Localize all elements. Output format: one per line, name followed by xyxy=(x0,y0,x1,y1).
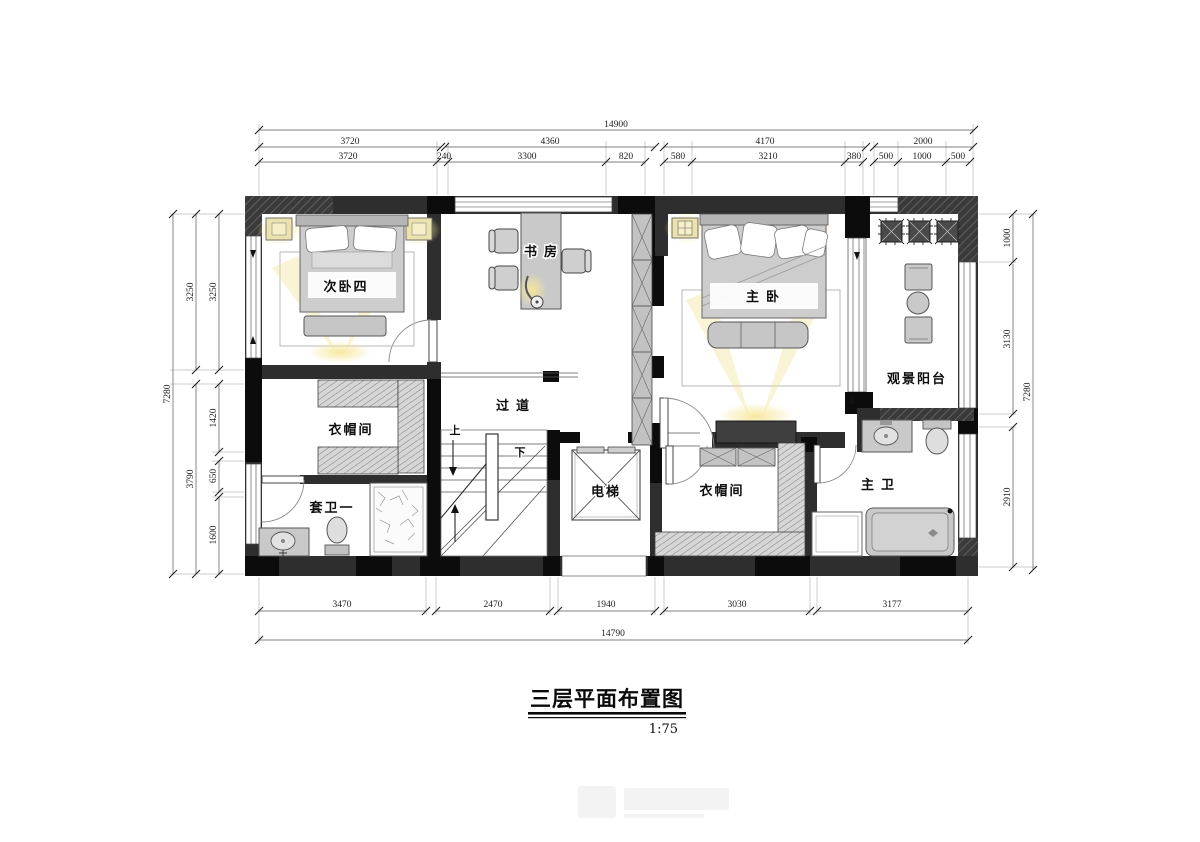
dim-top-r3-2: 3300 xyxy=(518,152,537,162)
shower-tray xyxy=(812,512,862,556)
master-bath-window xyxy=(959,434,976,538)
bed-headboard xyxy=(296,215,408,226)
room-label-study: 书房 xyxy=(524,244,564,260)
top-wall-block1 xyxy=(427,196,455,214)
bedroom4-door xyxy=(389,320,437,362)
cloakroom2-top-lines xyxy=(664,433,700,446)
toilet xyxy=(923,420,951,454)
room-label-elevator: 电梯 xyxy=(591,484,621,500)
stairs: 上 下 xyxy=(441,423,547,556)
tub-faucet xyxy=(948,509,953,514)
right-wall-hatch-top xyxy=(958,196,978,262)
dim-top-r3-0: 3720 xyxy=(339,152,358,162)
dim-right-total: 7280 xyxy=(1023,382,1033,401)
dim-bot-0: 3470 xyxy=(333,600,352,610)
dim-left-in-1: 1420 xyxy=(209,408,219,427)
bottom-wall-b2 xyxy=(356,556,392,576)
bed-headboard xyxy=(700,214,828,225)
balcony-top-window xyxy=(868,197,898,212)
drawing-scale: 1:75 xyxy=(649,722,678,737)
chair xyxy=(562,249,591,273)
dim-right-in-2: 2910 xyxy=(1003,487,1013,506)
pillow xyxy=(305,225,349,253)
dim-left-mid-1: 3790 xyxy=(186,469,196,488)
master-bedroom-door xyxy=(660,398,714,448)
pillow xyxy=(353,226,397,253)
label-stairs-up: 上 xyxy=(450,423,463,437)
room-cloakroom-right: 衣帽间 xyxy=(655,443,805,556)
room-suite-bath-one: 套卫一 xyxy=(259,483,427,556)
desk-lamp-dot xyxy=(536,301,539,304)
dim-top-r2-2: 4170 xyxy=(756,137,775,147)
watermark xyxy=(578,786,729,818)
wardrobe xyxy=(655,532,805,556)
plant-icon xyxy=(934,218,961,245)
plant-icon xyxy=(878,218,905,245)
wardrobe xyxy=(778,443,805,535)
duvet-fold xyxy=(312,252,392,268)
balcony-bath-wall-hatch xyxy=(880,408,974,421)
dim-top-r2-3: 2000 xyxy=(914,137,933,147)
dim-left-total: 7280 xyxy=(163,384,173,403)
title-block: 三层平面布置图 1:75 xyxy=(528,686,686,737)
room-label-cloakroom-right: 衣帽间 xyxy=(699,483,744,499)
bed-bench xyxy=(708,322,808,348)
dim-bot-1: 2470 xyxy=(484,600,503,610)
suite-bath-door xyxy=(262,476,304,522)
room-study: 书房 xyxy=(489,213,591,309)
dim-top-r3-7: 500 xyxy=(879,152,894,162)
dim-left-in-2: 650 xyxy=(209,469,219,484)
floor-lamp-glow xyxy=(308,341,372,363)
room-label-bedroom4: 次卧四 xyxy=(323,279,368,295)
bottom-wall-b1 xyxy=(245,556,279,576)
drawing-title: 三层平面布置图 xyxy=(530,686,684,711)
master-balcony-window xyxy=(848,238,866,392)
cabinet xyxy=(700,448,736,466)
bottom-wall-b4 xyxy=(543,556,560,576)
pillow xyxy=(703,224,742,260)
dim-top-r3-6: 380 xyxy=(847,152,862,162)
master-bath-door xyxy=(814,445,856,483)
room-label-suite-bath-one: 套卫一 xyxy=(308,500,354,516)
master-balcony-wall-top xyxy=(845,196,870,238)
study-window xyxy=(455,197,612,212)
floor-plan-page: 14900 3720 4360 4170 2000 3720 240 3300 … xyxy=(0,0,1200,842)
dim-top-r3-1: 240 xyxy=(437,152,452,162)
room-balcony: 观景阳台 xyxy=(878,218,961,387)
bedroom4-bottom-wall xyxy=(262,365,427,379)
dim-top-r3-4: 580 xyxy=(671,152,686,162)
bed-bench xyxy=(304,316,386,336)
floor-plan-drawing: 14900 3720 4360 4170 2000 3720 240 3300 … xyxy=(0,0,1200,842)
elevator-top-block-left xyxy=(558,432,580,443)
room-label-master-bedroom: 主卧 xyxy=(746,289,786,305)
room-cloakroom-left: 衣帽间 xyxy=(318,380,424,474)
vanity-sink xyxy=(259,528,309,556)
dim-bot-3: 3030 xyxy=(728,600,747,610)
dim-left-in-0: 3250 xyxy=(209,282,219,301)
room-master-bedroom: 主卧 xyxy=(664,213,840,443)
dim-right-in-1: 3130 xyxy=(1003,329,1013,348)
title-underline-thick xyxy=(528,712,686,715)
wardrobe xyxy=(318,447,398,474)
title-underline-thin xyxy=(528,717,686,718)
room-bedroom4: 次卧四 xyxy=(257,215,441,363)
chair xyxy=(489,266,518,290)
dim-right-in-0: 1000 xyxy=(1003,228,1013,247)
room-label-cloakroom-left: 衣帽间 xyxy=(328,422,373,438)
wardrobe xyxy=(318,380,398,407)
chair xyxy=(489,229,518,253)
dim-top-r3-5: 3210 xyxy=(759,152,778,162)
left-extension-lines xyxy=(170,214,244,574)
dim-bot-4: 3177 xyxy=(883,600,902,610)
bottom-wall-b3 xyxy=(420,556,460,576)
bottom-wall-b7 xyxy=(900,556,956,576)
balcony-window xyxy=(959,262,976,408)
dim-top-total: 14900 xyxy=(604,120,628,130)
shower-area xyxy=(370,483,427,556)
faucet xyxy=(880,421,892,425)
bedroom4-right-wall-stub xyxy=(427,362,441,380)
pillow xyxy=(740,222,778,258)
dim-top-r3-3: 820 xyxy=(619,152,634,162)
bottom-wall-b5 xyxy=(648,556,664,576)
dim-top-r2-1: 4360 xyxy=(541,137,560,147)
nightstand-lamp-icon xyxy=(412,223,426,235)
dim-top-r2-0: 3720 xyxy=(341,137,360,147)
dim-bottom-total: 14790 xyxy=(601,629,625,639)
bottom-wall-elevator-gap xyxy=(562,556,646,576)
balcony-table xyxy=(907,292,929,314)
dim-left-in-3: 1600 xyxy=(209,525,219,544)
toilet xyxy=(325,517,349,555)
dim-top-r3-9: 500 xyxy=(951,152,966,162)
dim-top-r3-8: 1000 xyxy=(913,152,932,162)
bathtub xyxy=(866,508,954,556)
dim-bot-2: 1940 xyxy=(597,600,616,610)
room-label-master-bath: 主卫 xyxy=(861,477,901,493)
dim-left-mid-0: 3250 xyxy=(186,282,196,301)
stair-rail xyxy=(486,434,498,520)
nightstand-lamp-icon xyxy=(272,223,286,235)
room-label-corridor: 过道 xyxy=(496,398,536,414)
nightstand xyxy=(672,218,698,238)
tv-console xyxy=(716,421,796,443)
bottom-wall-b6 xyxy=(755,556,810,576)
left-wall-block xyxy=(245,358,262,462)
elevator: 电梯 xyxy=(572,447,640,520)
room-label-balcony: 观景阳台 xyxy=(887,371,947,387)
elevator-door xyxy=(608,447,635,453)
stairs-left-wall xyxy=(427,379,441,556)
vanity-sink xyxy=(862,420,912,452)
elevator-door xyxy=(577,447,604,453)
cabinet xyxy=(738,448,775,466)
plant-icon xyxy=(906,218,933,245)
label-stairs-down: 下 xyxy=(515,446,528,459)
study-cabinet-column xyxy=(632,214,652,445)
wardrobe xyxy=(398,380,424,473)
